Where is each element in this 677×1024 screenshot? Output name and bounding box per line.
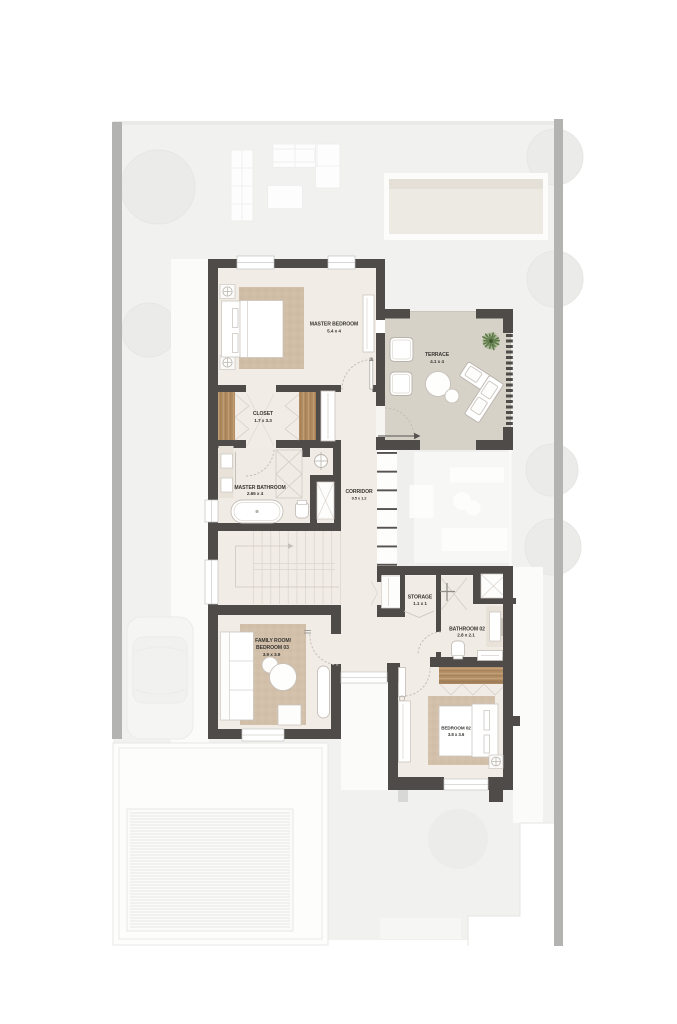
svg-text:MASTER BEDROOM: MASTER BEDROOM bbox=[310, 321, 358, 327]
svg-text:CORRIDOR: CORRIDOR bbox=[345, 489, 372, 495]
svg-text:1.1 x 1: 1.1 x 1 bbox=[413, 601, 427, 606]
svg-text:CLOSET: CLOSET bbox=[253, 411, 274, 417]
svg-text:2.65 x 4: 2.65 x 4 bbox=[247, 491, 264, 496]
svg-text:3.9 x 3.9: 3.9 x 3.9 bbox=[263, 652, 281, 657]
svg-text:TERRACE: TERRACE bbox=[425, 352, 450, 358]
svg-text:STORAGE: STORAGE bbox=[408, 595, 433, 601]
svg-text:BEDROOM 02: BEDROOM 02 bbox=[441, 725, 471, 730]
svg-text:9.5 x 1.2: 9.5 x 1.2 bbox=[352, 496, 368, 501]
svg-text:3.8 x 3.6: 3.8 x 3.6 bbox=[448, 732, 465, 737]
svg-text:4.1 x 4: 4.1 x 4 bbox=[430, 359, 444, 364]
svg-text:1.7 x 3.3: 1.7 x 3.3 bbox=[254, 418, 272, 423]
svg-text:FAMILY ROOM/: FAMILY ROOM/ bbox=[255, 638, 291, 644]
svg-text:2.8 x 2.1: 2.8 x 2.1 bbox=[457, 633, 475, 638]
svg-text:5.4 x 4: 5.4 x 4 bbox=[327, 328, 341, 333]
svg-text:BEDROOM 03: BEDROOM 03 bbox=[256, 645, 289, 651]
